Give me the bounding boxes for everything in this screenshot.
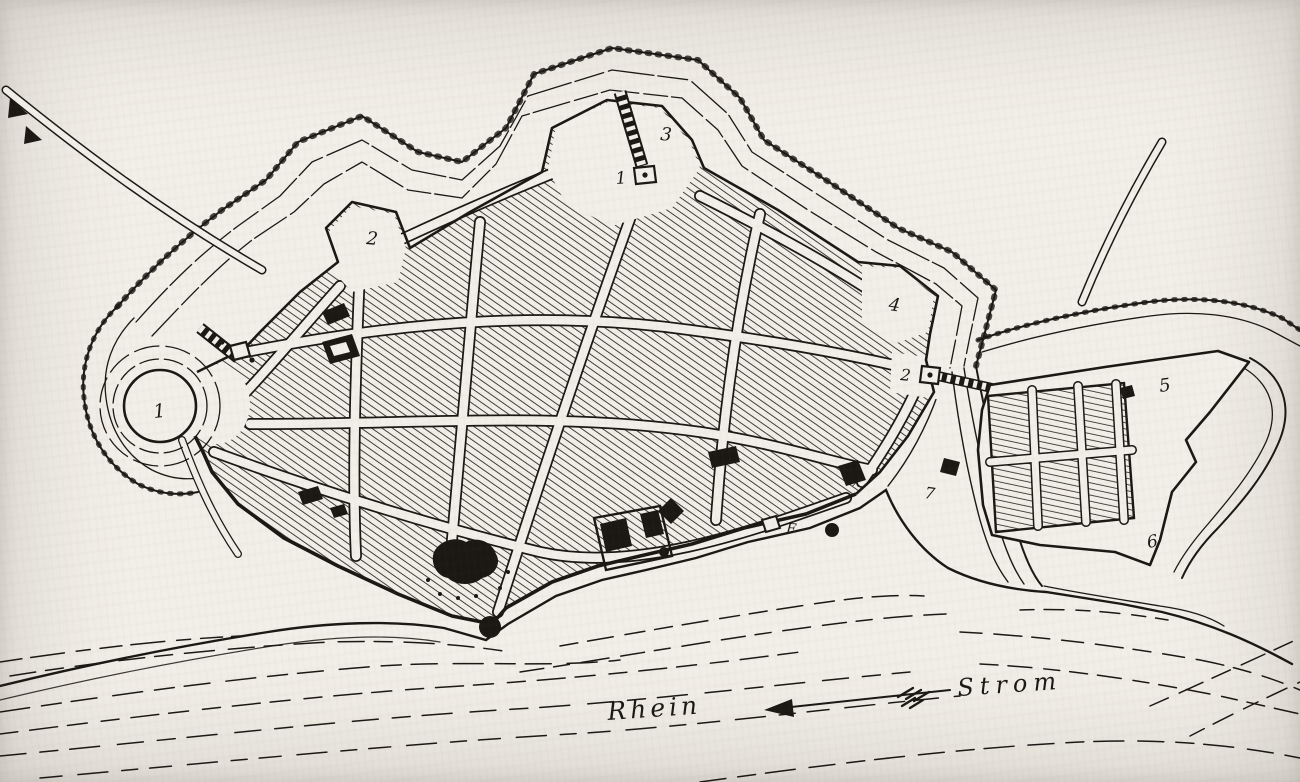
east-fort [978,299,1300,626]
fortification-plan-svg: 1 2 3 4 5 6 1 2 x 7 F Rhein Strom [0,0,1300,782]
river-tower [479,616,501,638]
east-channel-bridge [938,376,992,388]
fort-inner-grid [988,383,1135,532]
river-flow-lines [0,595,1300,782]
label-mark-f: F [785,521,798,538]
road-northeast [1082,142,1162,302]
west-gate [230,342,250,360]
label-river-flow: Strom [956,667,1062,702]
label-rondel: 1 [152,400,166,423]
label-bastion-north: 3 [660,124,673,146]
road-arrow-icon [24,126,42,144]
shore-tower-small [825,523,839,537]
flow-annotations [764,688,950,717]
walled-city [100,92,992,638]
label-gate-east: 2 [899,365,912,385]
label-river-name: Rhein [605,691,702,727]
label-bastion-nw: 2 [365,228,379,250]
road-northwest [6,90,262,270]
label-gate-north: 1 [615,168,627,189]
label-mark-7: 7 [923,483,937,503]
feather-mark-icon [898,688,929,708]
small-court-building [762,516,780,532]
engraved-map-canvas: 1 2 3 4 5 6 1 2 x 7 F Rhein Strom [0,0,1300,782]
